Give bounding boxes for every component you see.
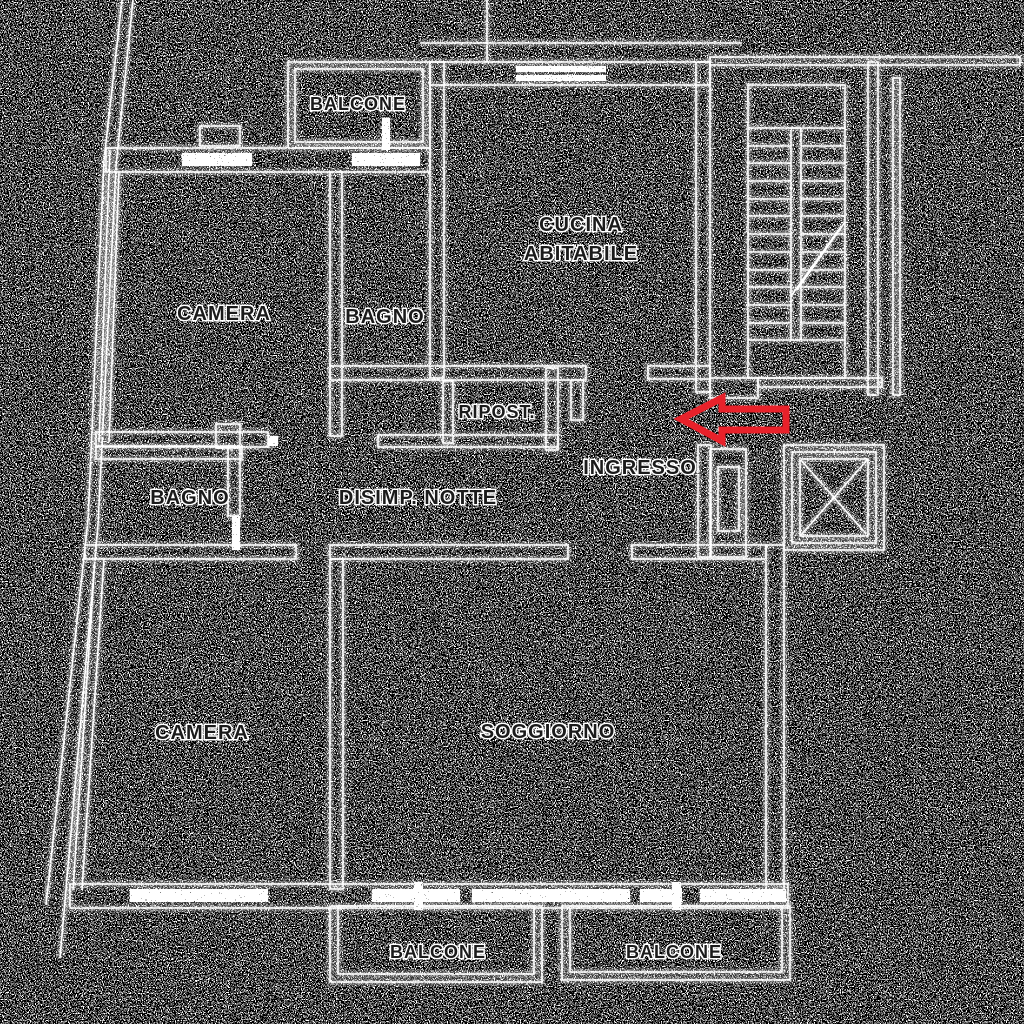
floor-plan-image: BALCONE CUCINA ABITABILE CAMERA BAGNO RI… <box>0 0 1024 1024</box>
room-label-ripost: RIPOST. <box>458 402 535 422</box>
room-label-balcone-top: BALCONE <box>310 94 406 114</box>
room-label-cucina-line2: ABITABILE <box>524 243 638 265</box>
room-label-bagno-top: BAGNO <box>345 306 424 328</box>
room-label-cucina-line1: CUCINA <box>539 214 623 236</box>
pepper-noise-layer <box>0 0 1024 1024</box>
room-label-balcone-bottom-left: BALCONE <box>390 942 486 962</box>
room-label-disimp-notte: DISIMP. NOTTE <box>339 487 497 509</box>
room-label-ingresso: INGRESSO <box>583 457 697 479</box>
room-label-soggiorno: SOGGIORNO <box>481 721 616 743</box>
floor-plan-svg: BALCONE CUCINA ABITABILE CAMERA BAGNO RI… <box>0 0 1024 1024</box>
room-label-camera-bottom: CAMERA <box>155 722 249 744</box>
room-label-bagno-lower: BAGNO <box>150 487 229 509</box>
room-label-camera-top: CAMERA <box>177 303 271 325</box>
room-label-balcone-bottom-right: BALCONE <box>626 942 722 962</box>
